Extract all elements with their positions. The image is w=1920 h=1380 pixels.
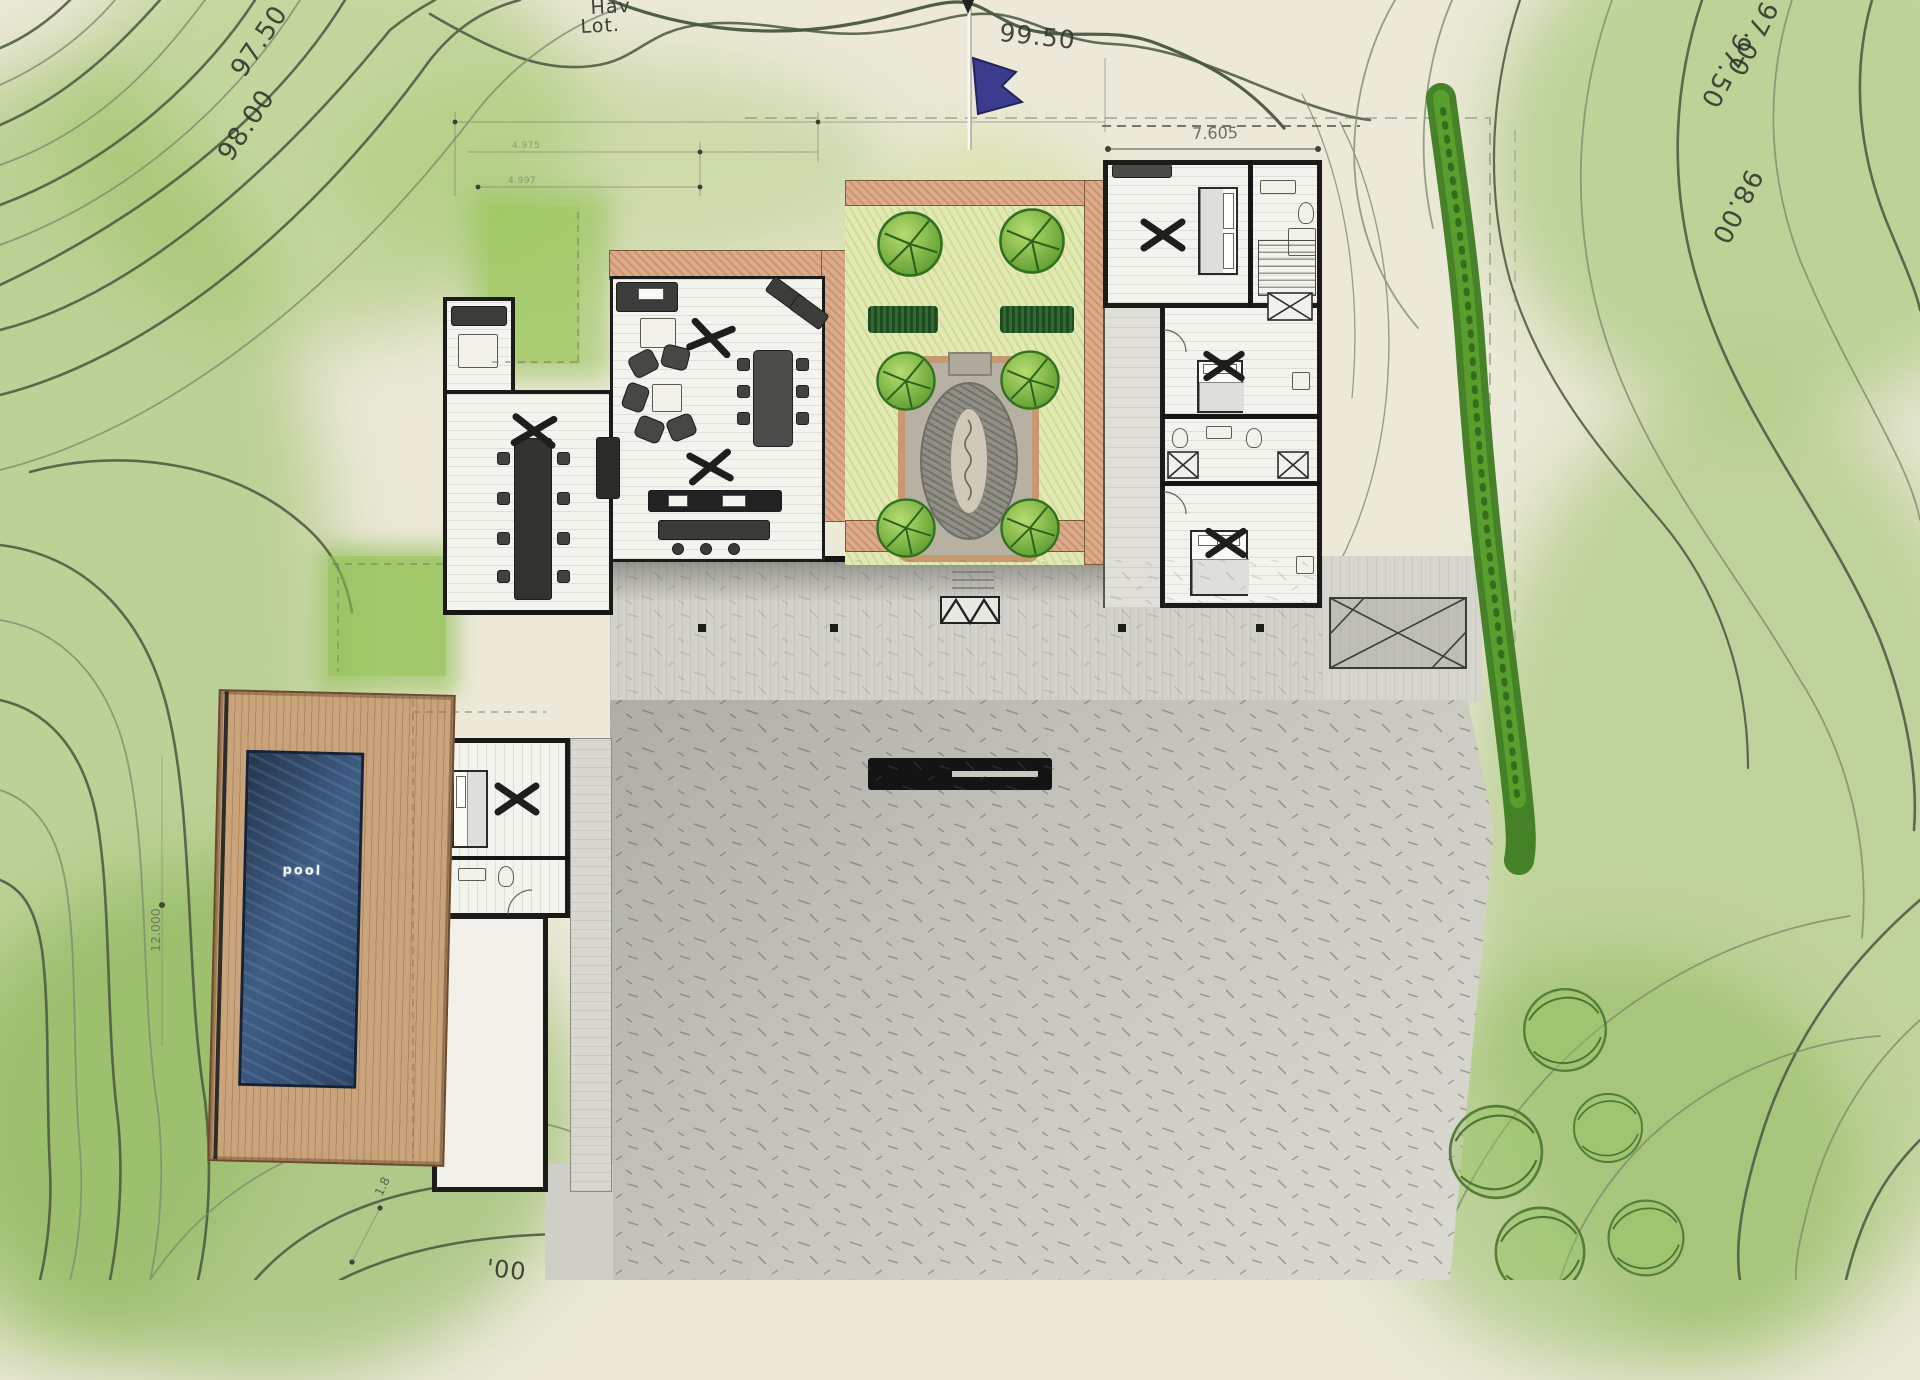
bottom-right-trees — [1450, 989, 1683, 1280]
water-squiggle — [965, 420, 971, 500]
dimension-north-2: 4.997 — [508, 176, 536, 186]
dimension-right-wing: 7.605 — [1192, 123, 1238, 143]
lot-label-line2: Lot. — [580, 14, 620, 38]
dimension-pool-length: 12.000 — [148, 908, 163, 952]
courtyard-trees — [878, 210, 1064, 557]
site-plan-drawing: { "title": "Hand-drawn architectural sit… — [0, 0, 1920, 1280]
contour-label-100-bottom: '00 — [485, 1254, 528, 1286]
closet-x-marks — [1168, 293, 1312, 478]
dimension-north-1: 4.975 — [512, 141, 540, 151]
deck-dimension-line — [352, 1208, 380, 1262]
cross-hatched-feature — [1330, 598, 1466, 668]
terrace-bench — [941, 597, 999, 623]
overlay-vector-layer — [0, 0, 1920, 1280]
